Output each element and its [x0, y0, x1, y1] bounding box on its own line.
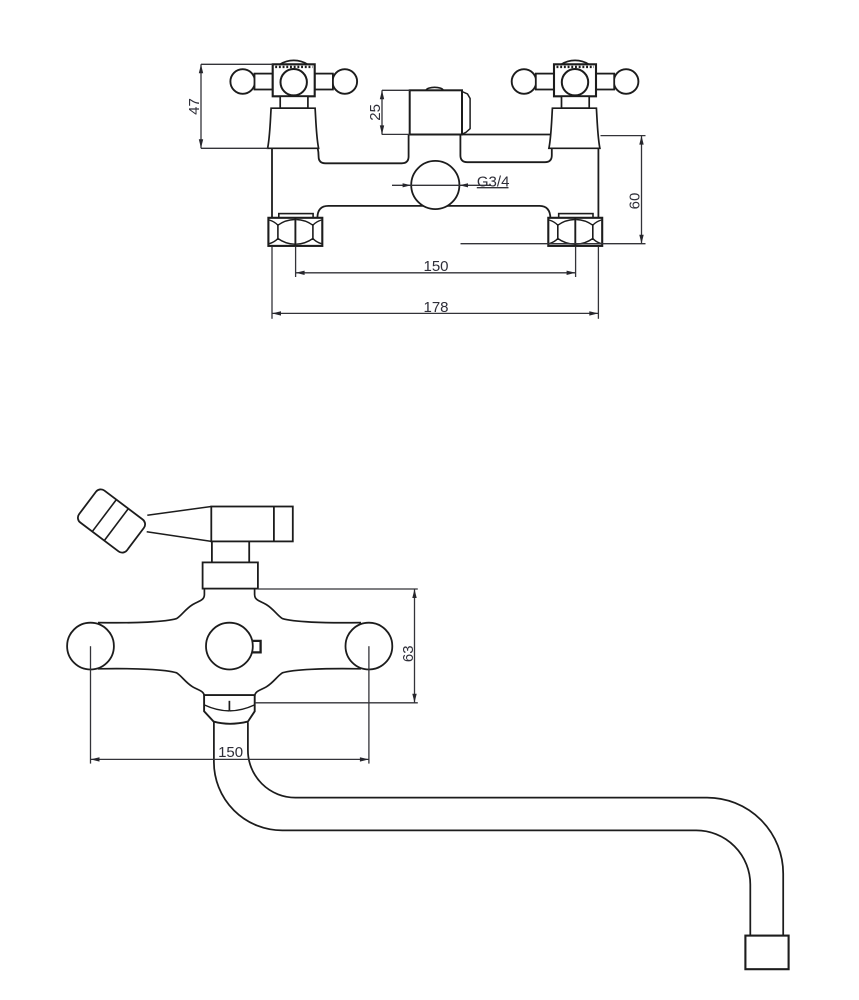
svg-text:150: 150: [218, 744, 243, 761]
svg-text:178: 178: [423, 299, 448, 316]
svg-text:47: 47: [186, 98, 203, 115]
svg-text:25: 25: [367, 104, 384, 121]
svg-text:63: 63: [400, 645, 417, 662]
svg-text:150: 150: [423, 258, 448, 275]
svg-text:60: 60: [627, 193, 644, 210]
svg-text:G3/4: G3/4: [477, 173, 510, 190]
